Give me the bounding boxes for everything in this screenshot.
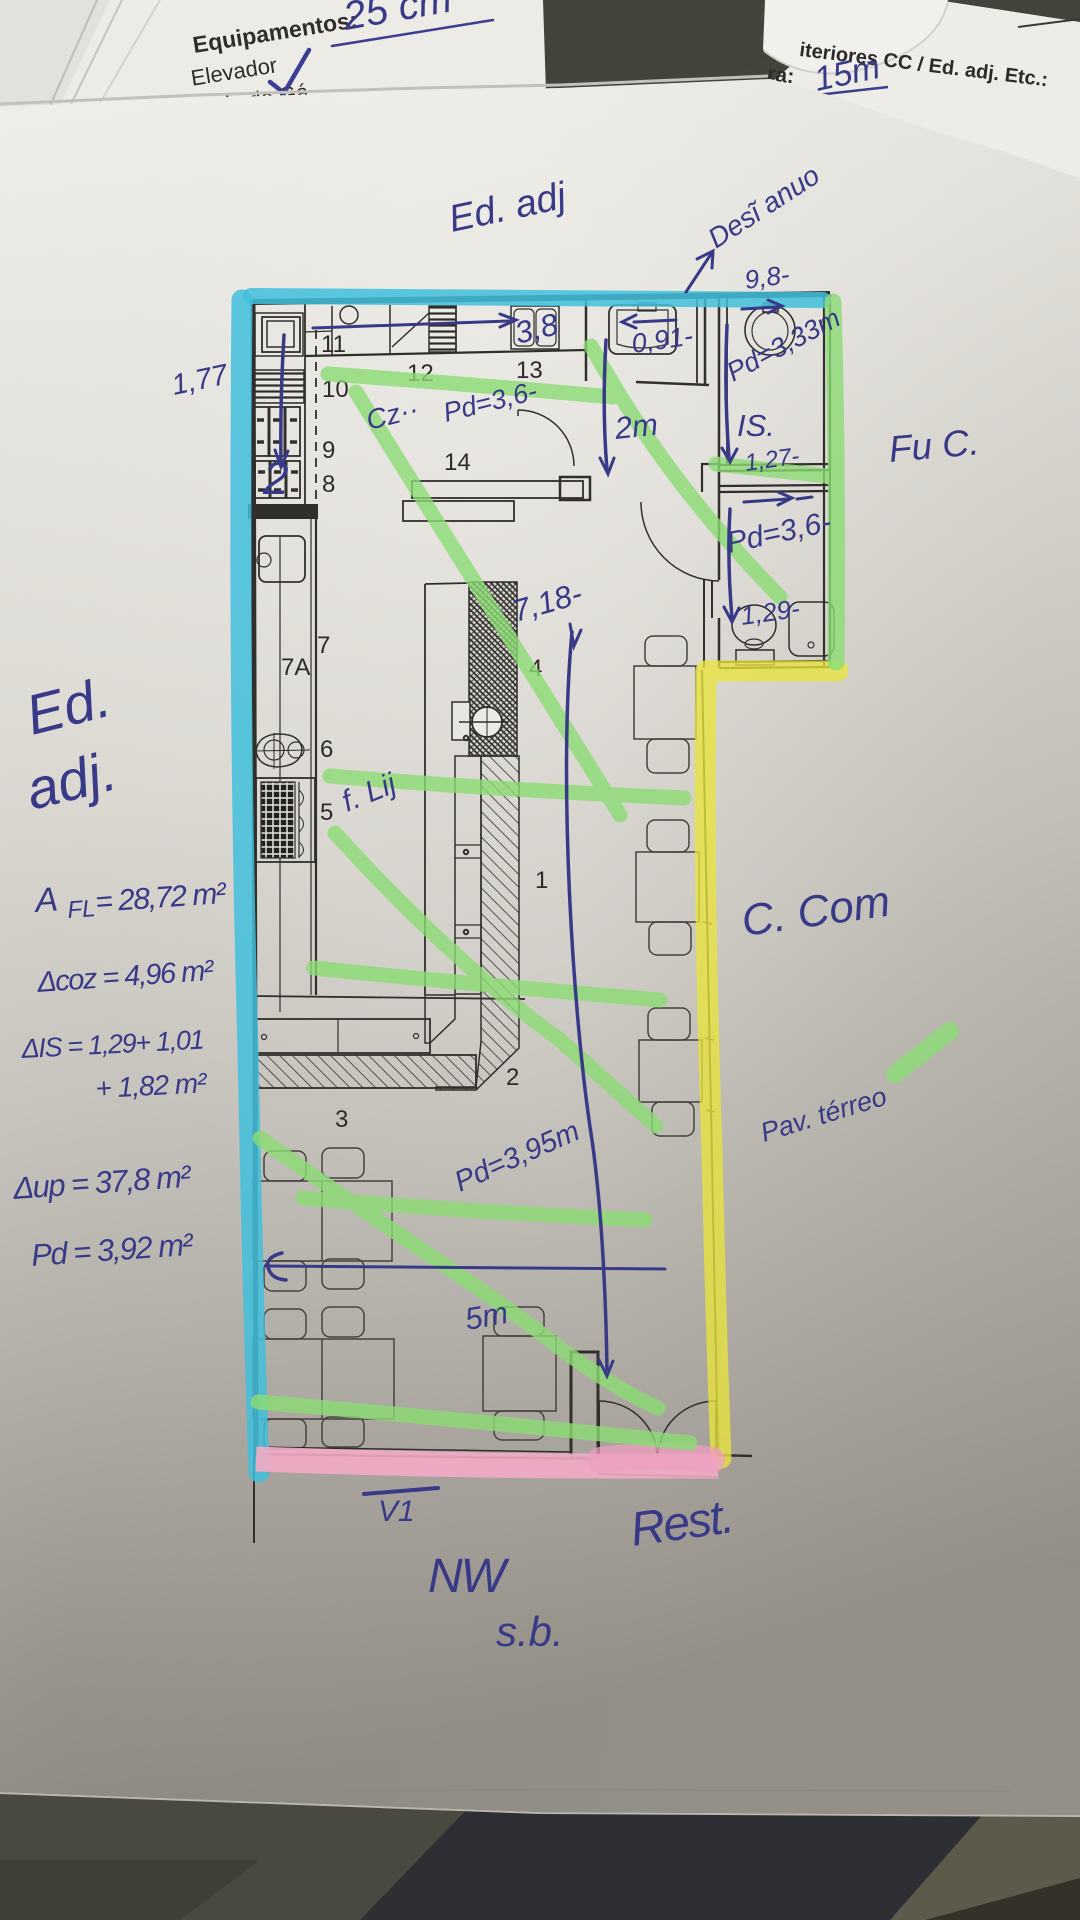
svg-text:FL: FL <box>67 895 97 924</box>
svg-text:5: 5 <box>320 799 333 826</box>
svg-text:V1: V1 <box>378 1495 415 1528</box>
svg-text:8: 8 <box>322 471 335 498</box>
svg-text:2: 2 <box>262 452 289 504</box>
svg-text:1: 1 <box>535 867 548 894</box>
svg-text:14: 14 <box>444 449 471 476</box>
svg-text:IS.: IS. <box>737 408 775 443</box>
svg-text:s.b.: s.b. <box>496 1608 564 1655</box>
svg-text:2: 2 <box>506 1064 519 1091</box>
svg-text:9,8-: 9,8- <box>743 259 792 295</box>
svg-text:5m: 5m <box>462 1295 511 1337</box>
svg-text:NW: NW <box>428 1550 511 1603</box>
svg-text:6: 6 <box>320 736 333 763</box>
svg-text:7: 7 <box>317 632 330 659</box>
svg-text:11: 11 <box>321 331 346 358</box>
svg-text:+ 1,82 m²: + 1,82 m² <box>95 1067 209 1104</box>
svg-text:2m: 2m <box>612 407 659 446</box>
svg-text:Fu C.: Fu C. <box>887 421 981 470</box>
svg-text:A: A <box>32 880 59 920</box>
svg-text:3: 3 <box>335 1106 348 1133</box>
svg-text:7A: 7A <box>281 654 310 681</box>
svg-text:9: 9 <box>322 437 335 464</box>
